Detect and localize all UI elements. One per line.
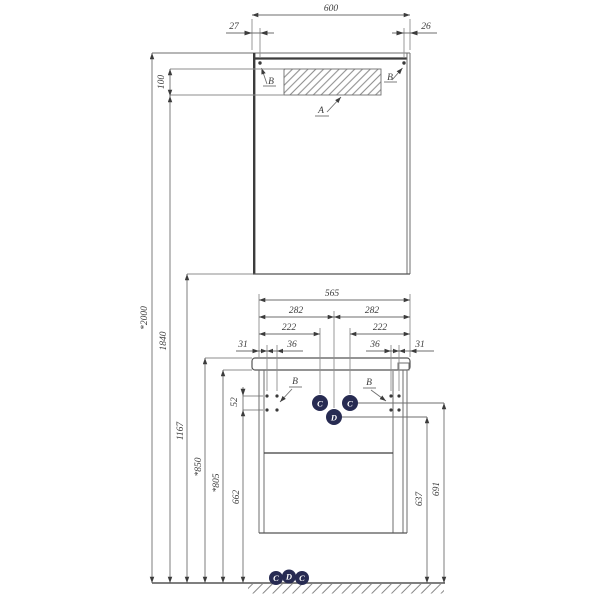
dim-27-label: 27 xyxy=(229,22,240,32)
installation-diagram: B B A 600 27 26 *2000 1840 100 xyxy=(0,0,600,600)
dim-222-right-label: 222 xyxy=(373,323,388,333)
vanity-label-b-right: B xyxy=(366,378,372,388)
vanity-dimensions: 565 282 282 222 222 31 36 36 31 xyxy=(236,289,434,408)
label-b-right: B xyxy=(387,73,393,83)
floor: C D C xyxy=(152,570,445,594)
arrowhead xyxy=(397,31,405,36)
label-b-left: B xyxy=(268,77,274,87)
floor-hatch xyxy=(248,584,444,594)
mirror-cabinet: B B A xyxy=(152,53,410,275)
countertop-corner-detail xyxy=(398,363,409,370)
mount-hole-left xyxy=(258,61,261,64)
arrowhead xyxy=(410,31,418,36)
arrowhead xyxy=(260,31,268,36)
mount-hole xyxy=(389,408,392,411)
arrowhead xyxy=(277,349,283,353)
dim-662-label: 662 xyxy=(232,490,242,505)
mount-hole xyxy=(275,408,278,411)
label-b-left-arrow xyxy=(262,68,268,84)
dim-1840-label: 1840 xyxy=(159,331,169,350)
height-dimensions: *2000 1840 100 1167 *850 *805 52 662 637… xyxy=(140,53,444,583)
dim-222-left-label: 222 xyxy=(282,323,297,333)
dim-31-right-label: 31 xyxy=(414,340,425,350)
arrowhead xyxy=(393,349,399,353)
mount-hole xyxy=(265,394,268,397)
dim-282-left-label: 282 xyxy=(289,306,304,316)
mount-hole-right xyxy=(402,61,405,64)
light-panel-hatch-area xyxy=(284,69,381,95)
dim-52-label: 52 xyxy=(230,397,240,407)
dim-1167-label: 1167 xyxy=(176,421,186,441)
mount-hole xyxy=(397,408,400,411)
mount-hole xyxy=(275,394,278,397)
mount-hole xyxy=(397,394,400,397)
mount-hole xyxy=(389,394,392,397)
label-a-arrow xyxy=(327,97,341,112)
vanity-cabinet: B B xyxy=(252,358,410,533)
dim-850-label: *850 xyxy=(194,457,204,476)
callout-supply-left-label: C xyxy=(317,398,323,408)
label-a: A xyxy=(317,106,324,116)
arrowhead xyxy=(241,389,246,396)
vanity-label-b-left: B xyxy=(292,377,298,387)
plumbing-callouts: C C D xyxy=(312,395,444,425)
countertop xyxy=(252,358,410,370)
dim-565-label: 565 xyxy=(325,289,340,299)
arrowhead xyxy=(253,349,260,353)
label-b-right-arrow xyxy=(392,68,403,80)
dim-805-label: *805 xyxy=(212,473,222,492)
dim-282-right-label: 282 xyxy=(365,306,380,316)
vanity-b-left-arrow xyxy=(280,389,292,402)
dim-691-label: 691 xyxy=(432,482,442,496)
arrowhead xyxy=(267,349,273,353)
vanity-b-right-arrow xyxy=(371,390,386,401)
dim-2000-label: *2000 xyxy=(140,306,150,330)
floor-callout-d-label: D xyxy=(285,572,292,582)
callout-supply-right-label: C xyxy=(347,398,353,408)
floor-callout-c1-label: C xyxy=(273,573,279,583)
mount-hole xyxy=(265,408,268,411)
dim-31-left-label: 31 xyxy=(237,340,248,350)
dim-36-left-label: 36 xyxy=(286,340,297,350)
dim-26-label: 26 xyxy=(421,22,431,32)
arrowhead xyxy=(399,349,405,353)
arrowhead xyxy=(245,31,253,36)
callout-drain-label: D xyxy=(330,412,337,422)
arrowhead xyxy=(385,349,392,353)
dim-36-right-label: 36 xyxy=(369,340,380,350)
drawing-canvas: B B A 600 27 26 *2000 1840 100 xyxy=(0,0,600,600)
floor-callout-c2-label: C xyxy=(299,573,305,583)
top-dimensions: 600 27 26 xyxy=(226,4,437,58)
arrowhead xyxy=(261,349,267,353)
dim-600-label: 600 xyxy=(324,4,339,14)
dim-100-label: 100 xyxy=(157,75,167,90)
dim-637-label: 637 xyxy=(415,491,425,507)
